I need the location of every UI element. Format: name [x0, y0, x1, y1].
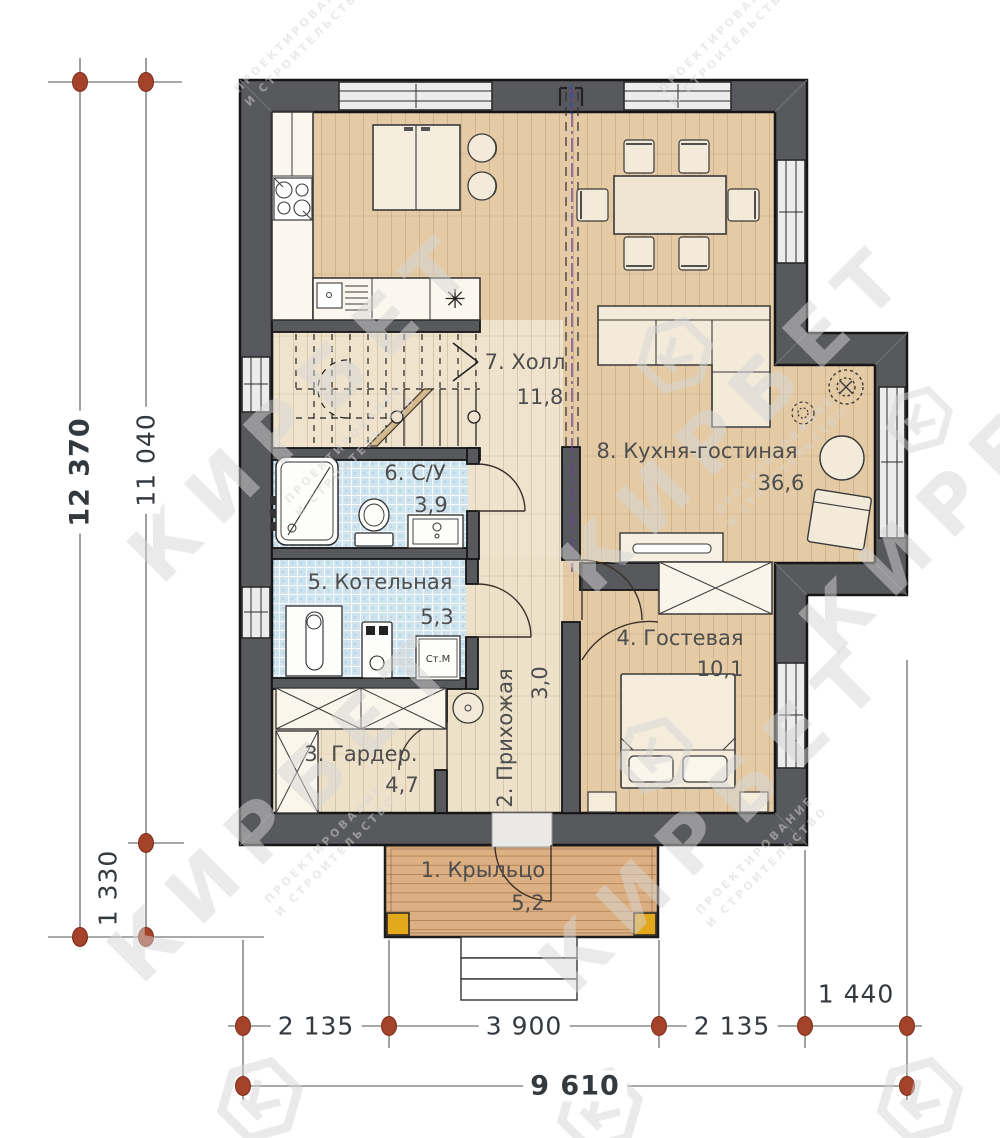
room-area-hall: 11,8	[517, 385, 564, 409]
room-label-boiler: 5. Котельная	[308, 570, 453, 594]
room-area-porch: 5,2	[511, 891, 544, 915]
window-dining-right	[777, 160, 805, 263]
room-area-entry-hall: 3,0	[528, 666, 552, 699]
dim-bottom-right: 2 135	[687, 1012, 778, 1041]
armchair	[807, 489, 872, 550]
dim-bottom-center: 3 900	[479, 1012, 570, 1041]
room-area-guest: 10,1	[697, 657, 744, 681]
tv-stand	[620, 533, 723, 562]
hall-table	[453, 693, 483, 723]
window-guest	[777, 663, 805, 768]
window-stairs-left	[242, 357, 270, 412]
pillow	[629, 756, 673, 782]
kitchen-counter-left	[272, 112, 313, 320]
room-area-kitchen-living: 36,6	[758, 471, 805, 495]
washing-machine-label: Ст.М	[426, 654, 451, 665]
dim-right-offset: 1 440	[818, 980, 895, 1009]
sink-symbol: ✳	[444, 285, 466, 315]
floor-plan-page: ✳	[0, 0, 1000, 1138]
dim-porch-height: 1 330	[94, 850, 123, 927]
bar-stool	[468, 134, 496, 162]
window-boiler-left	[242, 587, 270, 638]
dining-table	[614, 176, 726, 234]
coffee-table	[820, 436, 864, 480]
room-area-wardrobe: 4,7	[385, 773, 418, 797]
window-top-left	[339, 82, 492, 110]
room-label-wardrobe: 3. Гардер.	[304, 742, 417, 766]
dim-inner-height: 11 040	[132, 406, 161, 513]
porch-post	[634, 913, 656, 935]
porch-steps	[461, 937, 577, 1000]
bar-stool	[468, 172, 496, 200]
pillow	[683, 756, 727, 782]
room-label-bathroom: 6. С/У	[384, 461, 445, 485]
dim-overall-width: 9 610	[523, 1071, 627, 1102]
washbasin	[408, 515, 463, 548]
kitchen-sink	[317, 283, 342, 308]
nightstand	[740, 792, 768, 812]
boiler	[362, 622, 392, 678]
porch-post	[387, 913, 409, 935]
room-area-boiler: 5,3	[420, 605, 453, 629]
room-area-bathroom: 3,9	[414, 493, 447, 517]
dim-overall-height: 12 370	[65, 410, 96, 533]
window-top-right	[624, 82, 731, 110]
nightstand	[588, 792, 616, 812]
floor-plan-drawing: ✳	[0, 0, 1000, 1138]
room-label-guest: 4. Гостевая	[617, 626, 744, 650]
dim-bottom-left: 2 135	[271, 1012, 362, 1041]
room-label-porch: 1. Крыльцо	[421, 858, 545, 882]
room-label-hall: 7. Холл	[485, 350, 566, 374]
window-bay	[879, 387, 905, 538]
room-label-entry-hall: 2. Прихожая	[493, 668, 517, 807]
entrance-opening	[492, 813, 552, 847]
room-label-kitchen-living: 8. Кухня-гостиная	[597, 439, 798, 463]
shower	[270, 457, 338, 545]
water-tank	[286, 606, 342, 676]
